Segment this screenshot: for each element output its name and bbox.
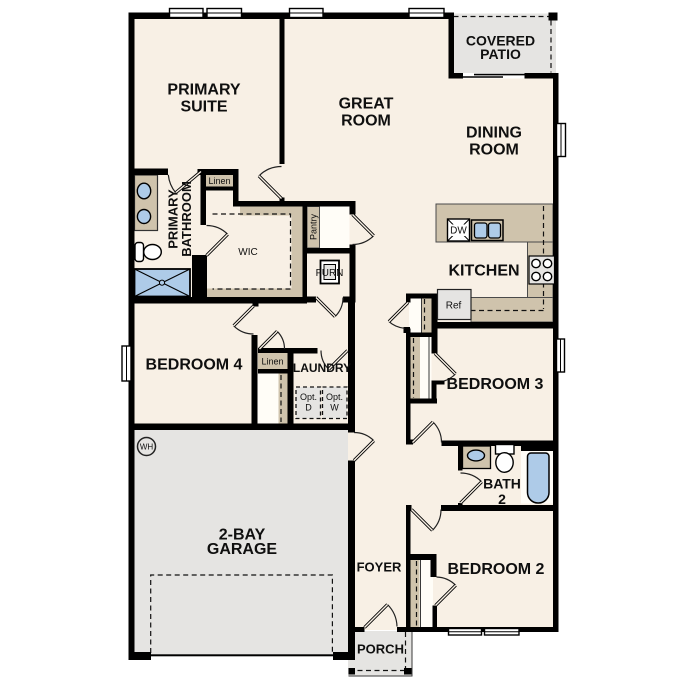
svg-text:W: W [330, 403, 339, 413]
svg-text:Opt.: Opt. [300, 392, 317, 402]
svg-text:PRIMARY: PRIMARY [167, 81, 241, 98]
svg-text:BEDROOM 4: BEDROOM 4 [146, 356, 243, 373]
svg-text:ROOM: ROOM [469, 141, 519, 158]
svg-text:PATIO: PATIO [480, 46, 521, 62]
svg-text:DW: DW [450, 226, 467, 237]
svg-text:ROOM: ROOM [341, 112, 391, 129]
svg-text:Opt.: Opt. [326, 392, 343, 402]
svg-text:PORCH: PORCH [357, 642, 404, 657]
svg-text:WH: WH [140, 443, 154, 452]
svg-text:BEDROOM 3: BEDROOM 3 [447, 376, 544, 393]
svg-text:Linen: Linen [261, 357, 283, 367]
svg-text:BATH: BATH [483, 476, 521, 492]
svg-text:D: D [305, 403, 312, 413]
svg-text:Ref: Ref [446, 301, 462, 312]
svg-text:SUITE: SUITE [180, 98, 227, 115]
svg-text:KITCHEN: KITCHEN [448, 262, 519, 279]
svg-text:2: 2 [498, 491, 506, 507]
svg-text:BATHROOM: BATHROOM [179, 181, 194, 257]
svg-text:GREAT: GREAT [339, 95, 394, 112]
svg-text:GARAGE: GARAGE [207, 541, 278, 558]
svg-text:DINING: DINING [466, 124, 522, 141]
svg-text:Pantry: Pantry [309, 213, 319, 240]
svg-text:WIC: WIC [238, 247, 257, 258]
svg-text:Linen: Linen [208, 176, 230, 186]
svg-text:LAUNDRY: LAUNDRY [293, 361, 351, 375]
svg-text:FOYER: FOYER [357, 560, 402, 575]
svg-text:FURN: FURN [316, 268, 344, 279]
svg-text:BEDROOM 2: BEDROOM 2 [448, 561, 545, 578]
